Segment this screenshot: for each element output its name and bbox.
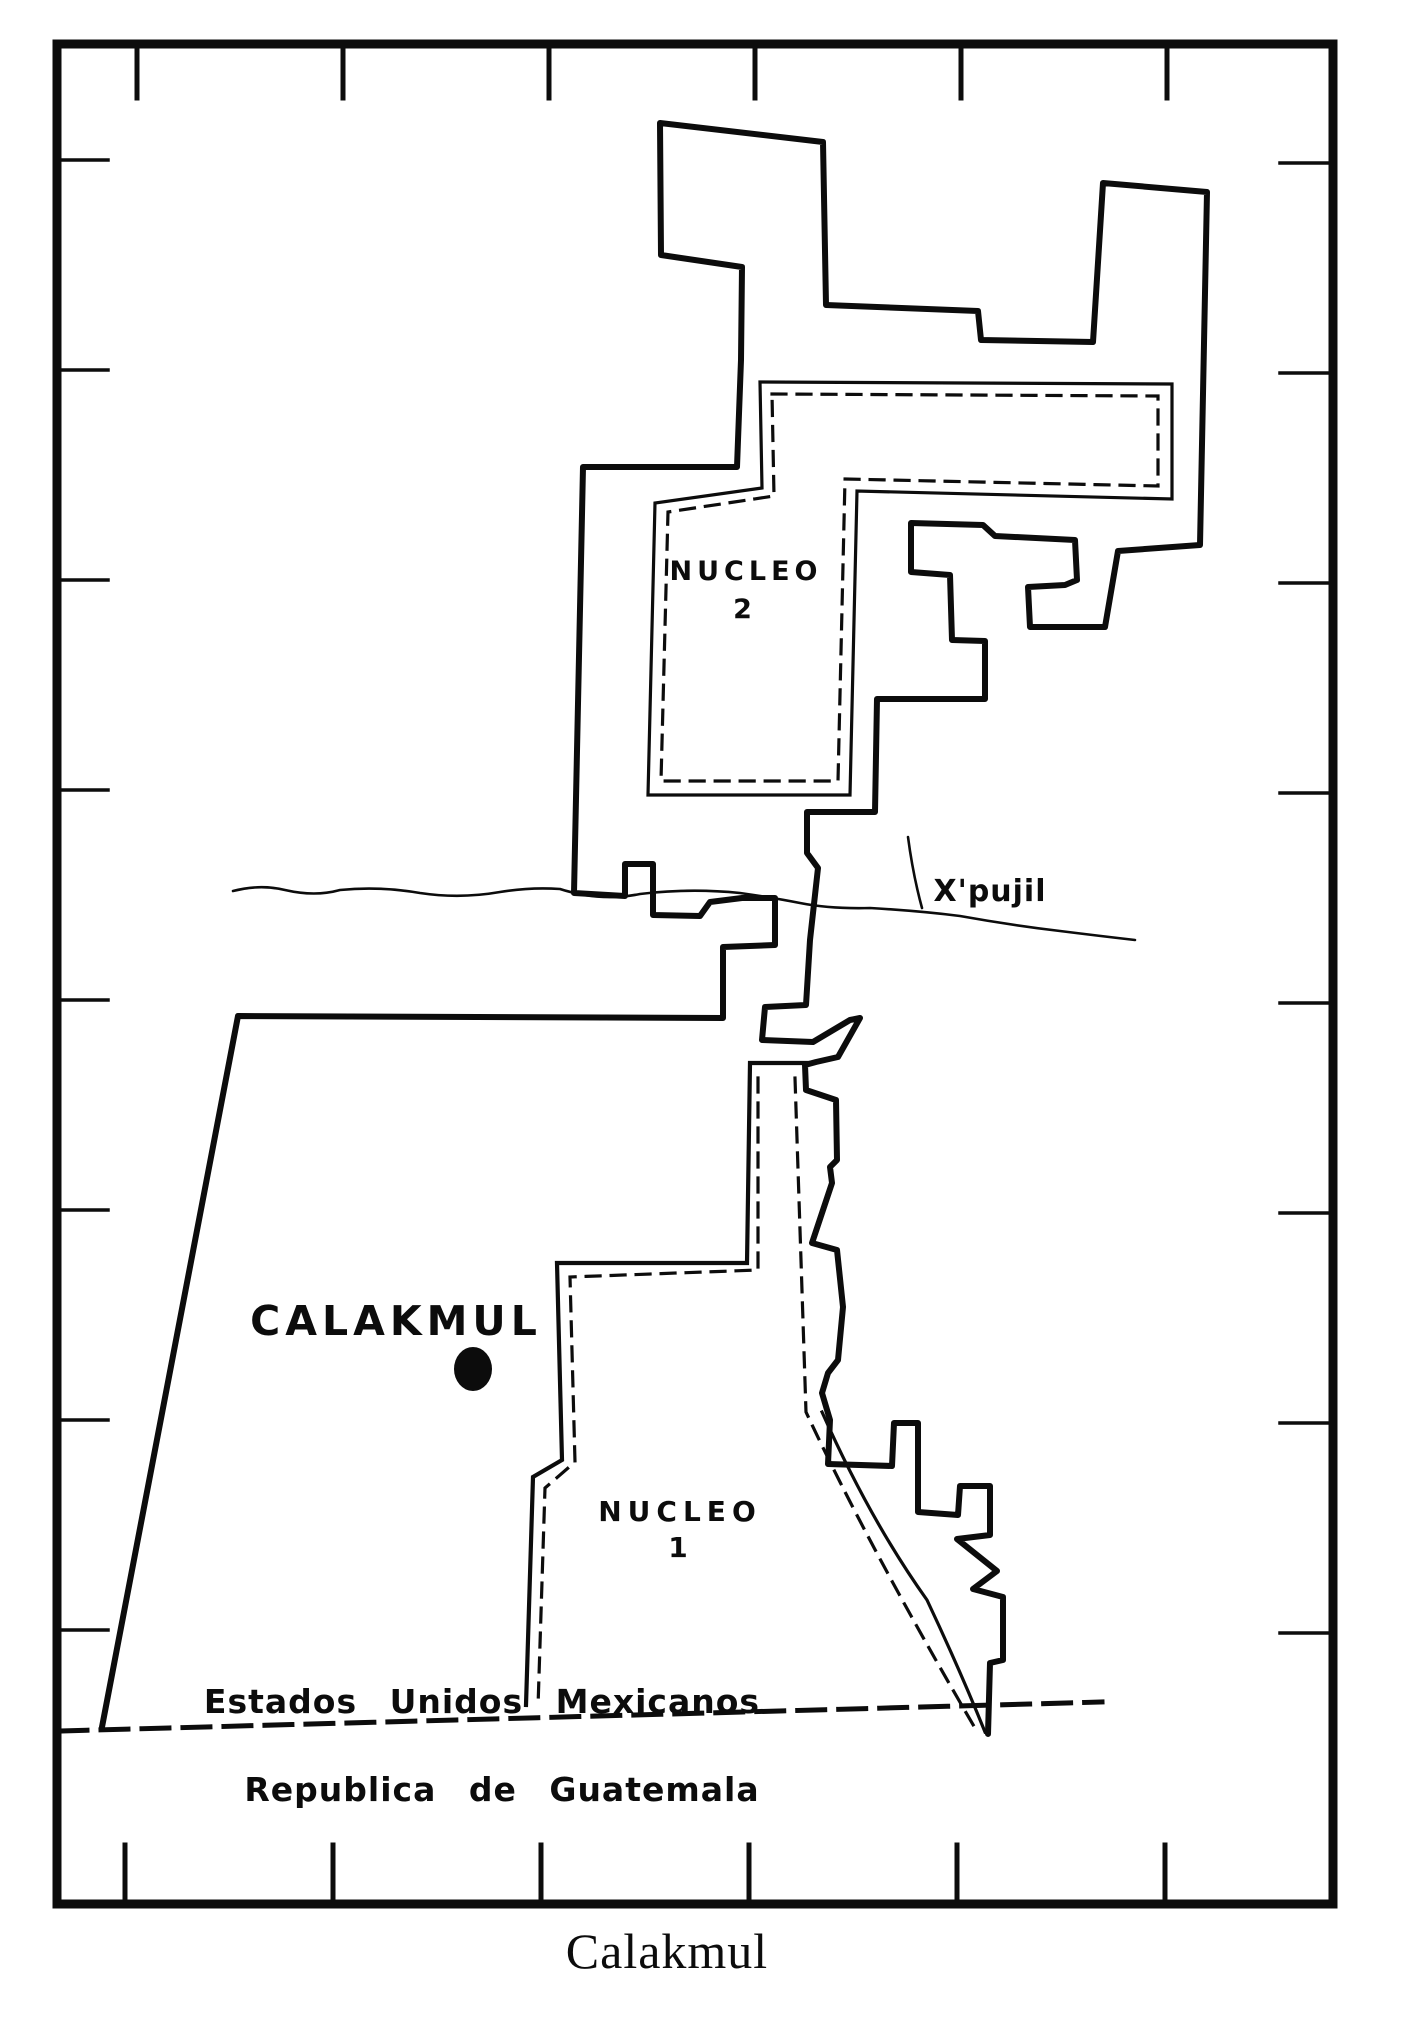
scanned-map-page: NUCLEO 2 X'pujil CALAKMUL NUCLEO 1 Estad…: [0, 0, 1408, 2019]
graticule-ticks-right: [1280, 163, 1328, 1633]
nucleo1-number: 1: [668, 1531, 693, 1564]
calakmul-site-dot: [454, 1347, 492, 1391]
graticule-ticks-top: [137, 48, 1167, 98]
mexico-border-label: Estados Unidos Mexicanos: [204, 1682, 760, 1721]
graticule-ticks-left: [62, 160, 108, 1630]
map-frame: [57, 44, 1333, 1904]
calakmul-reserve-map: NUCLEO 2 X'pujil CALAKMUL NUCLEO 1 Estad…: [0, 0, 1408, 2019]
nucleo1-label: NUCLEO: [598, 1495, 762, 1528]
calakmul-label: CALAKMUL: [250, 1297, 542, 1345]
nucleo1-east-outline: [822, 1412, 985, 1732]
nucleo2-outline: [648, 382, 1172, 795]
figure-caption: Calakmul: [566, 1923, 768, 1979]
nucleo1-outline: [526, 1063, 813, 1705]
graticule-ticks-bottom: [125, 1845, 1165, 1900]
xpujil-town-tick: [908, 837, 922, 908]
nucleo2-number: 2: [733, 594, 757, 625]
nucleo1-dashed-boundary: [538, 1078, 758, 1707]
nucleo2-label: NUCLEO: [670, 556, 823, 587]
guatemala-border-label: Republica de Guatemala: [244, 1770, 759, 1809]
xpujil-label: X'pujil: [934, 874, 1047, 909]
